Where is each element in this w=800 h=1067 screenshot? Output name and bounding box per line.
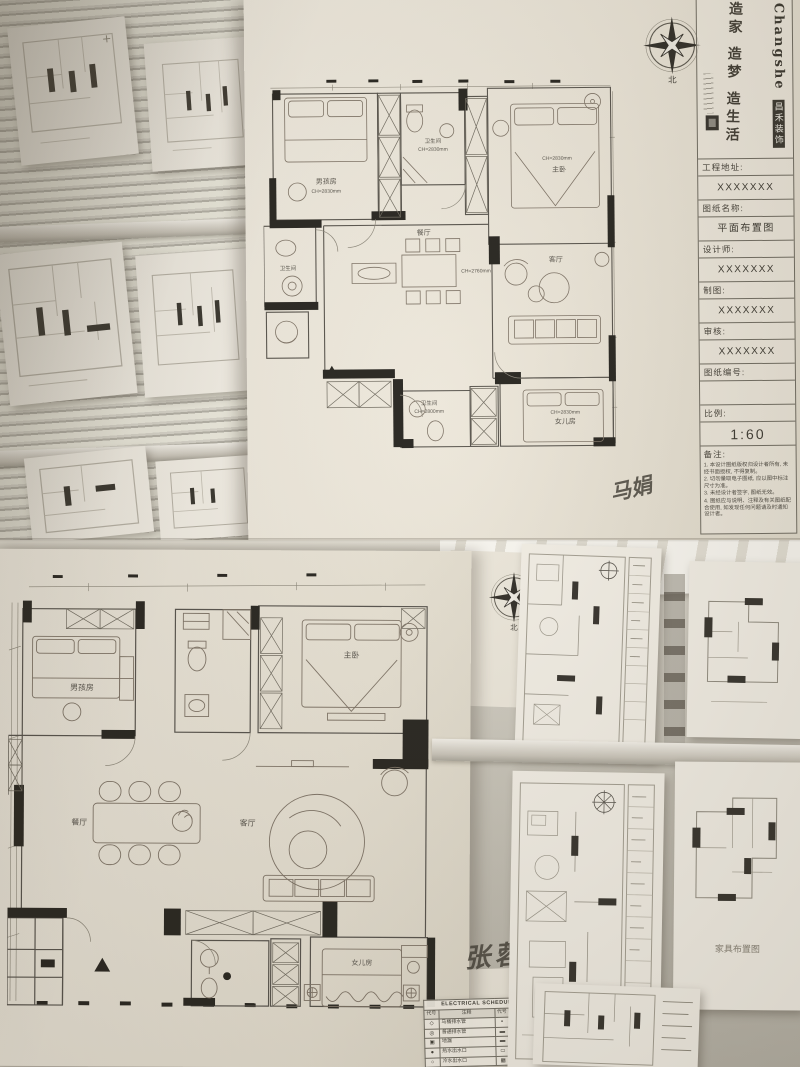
ceiling-height-label: CH=2800mm [414,409,444,415]
pinned-sheet [7,16,139,166]
top-photo-section: 北 [0,0,800,540]
floor-plan-sheet-bottom: 男孩房 主卧 餐厅 客厅 女儿房 [0,549,471,1067]
field-scale: 比例: 1:60 [700,405,795,447]
compass-mini-icon [592,790,616,814]
plant [595,252,609,266]
room-label: 餐厅 [417,228,431,237]
door-arcs [67,732,251,965]
dimension-marks [37,572,417,1009]
ceiling-height-label: CH=2760mm [461,268,491,274]
pinned-sheet-partial [533,983,701,1067]
dining-table [402,255,456,287]
plant [172,810,192,831]
pinned-sheet-simple-plan [686,561,800,739]
brand-name-en: Changshe [771,3,787,91]
armchair [504,259,528,285]
floor-plan-top: 男孩房 CH=2830mm 卫生间 CH=2830mm 主卧 CH=2830mm… [262,77,617,452]
media-console [256,760,349,766]
cabinet-handle [41,959,55,967]
field-drawing-name: 图纸名称: 平面布置图 [698,200,793,242]
master-bed [302,620,402,712]
sink [440,124,454,138]
note-item: 1. 本设计图纸版权归设计者所有, 未经书面授权, 不得复制。 [704,462,793,476]
bench [327,713,384,720]
field-reviewer: 审核: XXXXXXX [699,323,794,365]
seal-stamp-icon [706,115,719,130]
stool [288,183,306,201]
brand-logo: 造家 造梦 造生活 Changshe 昌禾装饰 [697,0,793,159]
legend-symbol: ▣ [425,1038,440,1048]
shower [403,157,427,183]
toilet [188,641,206,671]
legend-symbol: ◎ [424,1029,439,1039]
coffee-tables [528,273,569,303]
brand-slogan: 造家 造梦 造生活 [721,1,745,145]
stool [63,703,81,721]
note-item: 3. 未经设计者签字, 图纸无效。 [704,490,793,497]
nightstand-flower [403,985,419,1001]
nightstand-flower [304,985,320,1001]
field-drawing-number: 图纸编号: [700,364,795,406]
room-label: 客厅 [549,255,563,264]
toilet [407,105,423,132]
brand-name-cn: 昌禾装饰 [773,100,785,148]
washer [183,613,209,629]
designer-signature: 马娟 [607,469,654,507]
title-block: 造家 造梦 造生活 Changshe 昌禾装饰 工程地址: XXXXXXX 图纸… [696,0,798,534]
bottom-photo-section: 男孩房 主卧 餐厅 客厅 女儿房 北 张蓉 ELECTRICAL S [0,540,800,1067]
sink [200,949,218,974]
field-designer: 设计师: XXXXXXX [699,241,794,283]
room-label: 主卧 [344,650,360,660]
sofa [508,315,600,344]
north-label: 北 [668,75,677,85]
sideboard [352,263,396,283]
room-label: 主卧 [552,165,566,174]
room-label: 卫生间 [421,399,438,407]
photo-seam [0,538,800,542]
note-item: 2. 切勿量取电子图纸, 应以图中标注尺寸为准。 [704,476,793,490]
entry-arrow [94,958,110,972]
floor-drain [223,972,231,980]
stool [400,623,418,641]
sink [185,695,209,717]
toilet [427,421,443,441]
pinned-sheet [144,36,261,171]
compass-rose-icon: 北 [640,12,705,89]
pinned-sheet-furnished-plan [514,544,661,761]
legend-symbol: ● [425,1048,440,1058]
desk [401,945,427,973]
floor-plan-bottom: 男孩房 主卧 餐厅 客厅 女儿房 [7,559,437,1013]
bed [284,97,367,162]
pinned-sheet-furniture-layout: 家具布置图 [673,761,800,1010]
ceiling-height-label: CH=2830mm [418,147,448,153]
room-label: 餐厅 [71,818,87,827]
room-label: 卫生间 [280,264,297,272]
field-project-address: 工程地址: XXXXXXX [698,159,793,201]
toilet [201,978,217,998]
dining-chairs [406,239,461,304]
photo-floor-plans-on-wall: 北 [0,0,800,1067]
field-drafter: 制图: XXXXXXX [699,282,794,324]
closet-hatch [7,607,425,1007]
dimension-marks [326,78,560,85]
ceiling-height-label: CH=2830mm [542,156,572,162]
pinned-sheet [0,242,138,407]
ceiling-height-label: CH=2830mm [311,189,341,195]
shower [223,610,251,640]
bed [322,949,404,1007]
sheet-title: 家具布置图 [715,943,760,954]
room-label: 客厅 [240,818,256,828]
pinned-sheet [135,248,257,397]
sofa [263,875,374,901]
walls [7,605,429,1007]
desk [120,657,134,701]
balcony-chair [275,321,297,343]
pinned-sheet [155,455,262,540]
dining-table [93,803,200,843]
calligraphy-script [703,73,713,113]
room-label: 女儿房 [555,417,576,426]
brand-name: Changshe 昌禾装饰 [769,3,788,148]
legend-symbol: ○ [425,1058,440,1067]
pinned-sheet [24,446,154,540]
furniture [31,609,429,1007]
stool [493,120,509,136]
room-label: 女儿房 [351,958,372,967]
room-label: 男孩房 [316,177,337,186]
room-label: 卫生间 [425,137,442,145]
room-label: 男孩房 [70,682,94,692]
vent-strip [664,574,685,752]
toilet [276,240,296,256]
north-label: 北 [510,623,518,632]
dimension-lines [7,581,425,1003]
washer [282,276,302,296]
scale-value: 1:60 [700,422,795,447]
wall-segments [7,601,437,1007]
floor-plan-sheet-top: 北 [244,0,800,540]
armchair [381,767,409,796]
compass-mini-icon [599,560,620,581]
ceiling-height-label: CH=2830mm [550,410,580,416]
legend-symbol: ◇ [424,1019,439,1029]
note-item: 4. 图纸应与说明、注释及有关图纸配合使用, 如发现任何问题请及时通知设计者。 [704,498,793,519]
dining-chairs [99,781,181,865]
notes-section: 备注: 1. 本设计图纸版权归设计者所有, 未经书面授权, 不得复制。 2. 切… [701,446,797,519]
